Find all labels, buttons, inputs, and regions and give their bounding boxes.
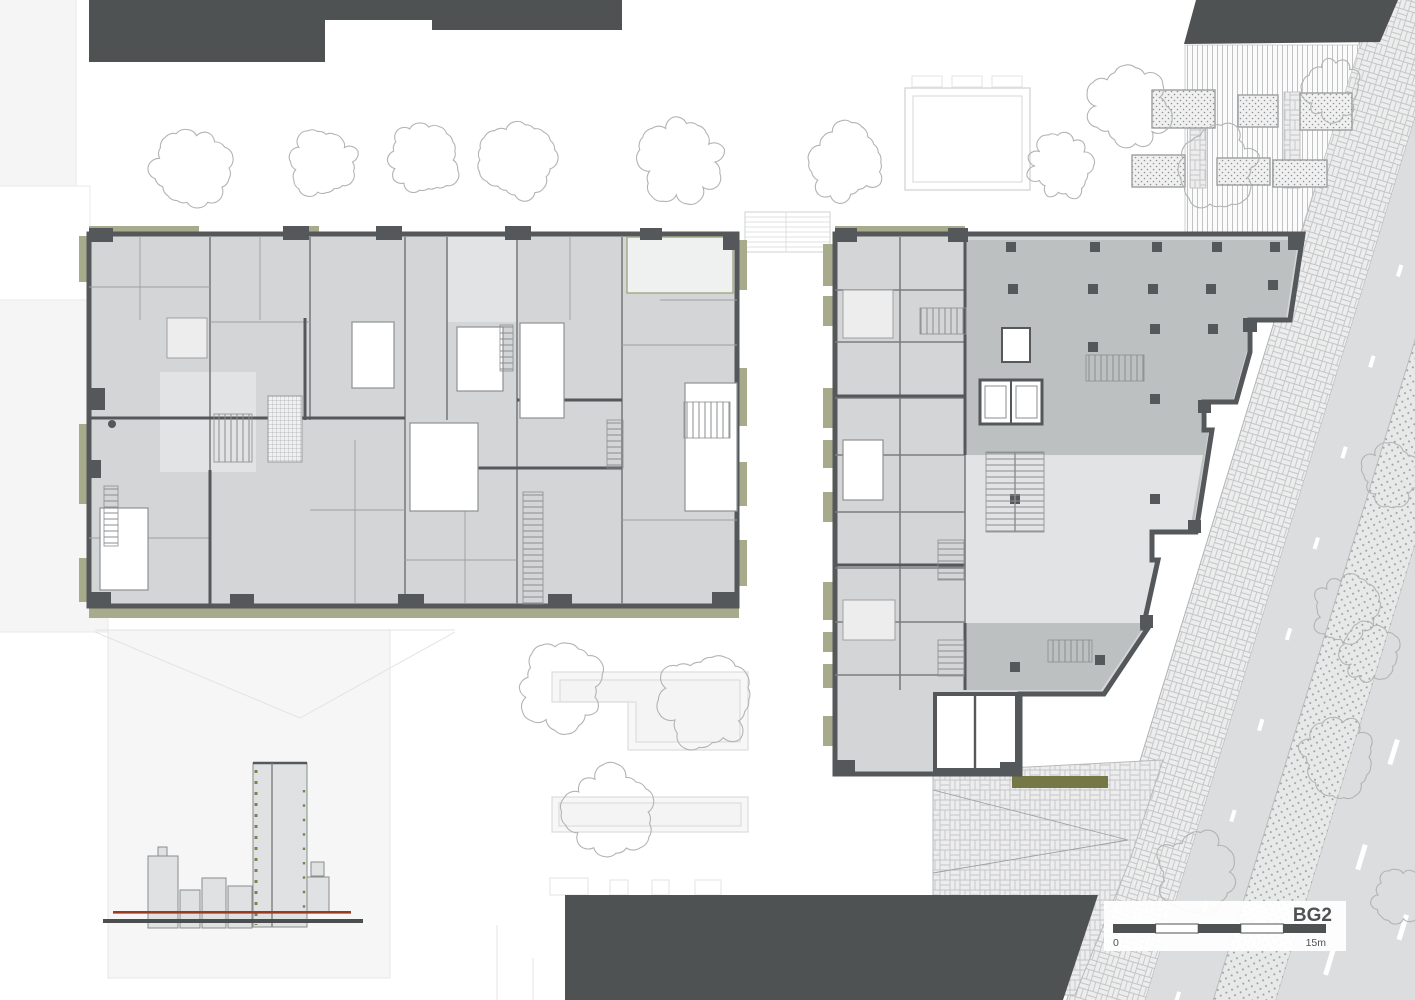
service-room (1002, 328, 1030, 362)
column-dot (108, 420, 116, 428)
scale-start-label: 0 (1113, 937, 1119, 949)
planting-strip (1012, 776, 1108, 788)
plan-label: BG2 (1293, 905, 1332, 926)
courtyard-planter-north (905, 76, 1030, 190)
section-cut-line (113, 911, 351, 914)
scale-end-label: 15m (1306, 937, 1327, 949)
shaft (268, 396, 302, 462)
terrace (627, 237, 733, 293)
site-plan-canvas: BG2 0 15m (0, 0, 1415, 1000)
left-building-plan (79, 226, 747, 618)
scale-bar-panel: BG2 0 15m (1104, 901, 1346, 951)
entry-vestibule (935, 694, 1017, 770)
elevator-core (980, 380, 1042, 424)
architectural-floor-plan: BG2 0 15m (0, 0, 1415, 1000)
ground-line (103, 919, 363, 923)
adjacent-building-south (565, 895, 1098, 1000)
roof-overhang-northeast (1184, 0, 1398, 44)
exterior-steps (745, 212, 830, 252)
scale-bar (1113, 924, 1326, 933)
